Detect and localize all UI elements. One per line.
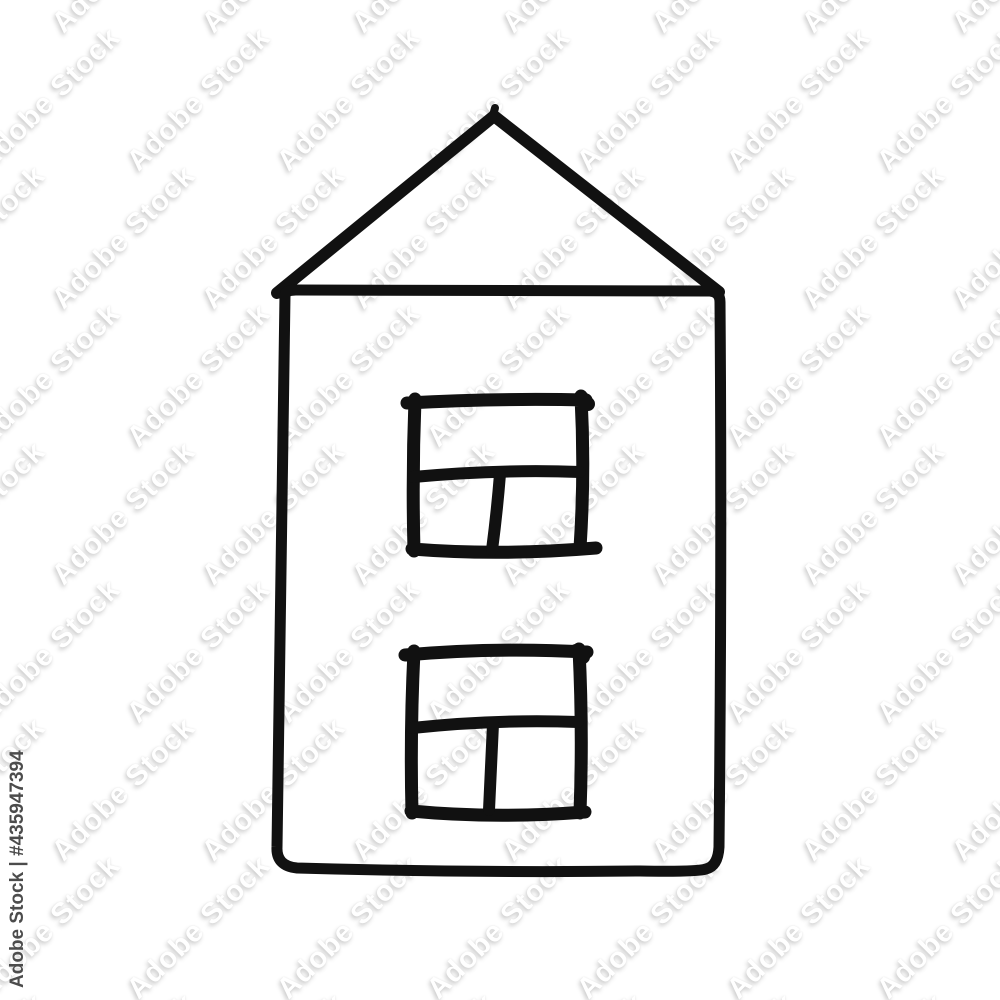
house-doodle-drawing <box>0 0 1000 1000</box>
stock-image-canvas: Adobe StockAdobe StockAdobe StockAdobe S… <box>0 0 1000 1000</box>
house-body-outline <box>277 290 721 872</box>
lower-window-corner-nub <box>576 651 583 657</box>
upper-window-divider-vertical <box>492 474 500 550</box>
upper-window-corner-nub <box>582 398 588 404</box>
roof-peak-tick <box>492 108 495 119</box>
roof-outline <box>277 116 719 293</box>
watermark-id-label: Adobe Stock | #435947394 <box>7 750 29 988</box>
lower-window-divider-vertical <box>489 724 493 810</box>
